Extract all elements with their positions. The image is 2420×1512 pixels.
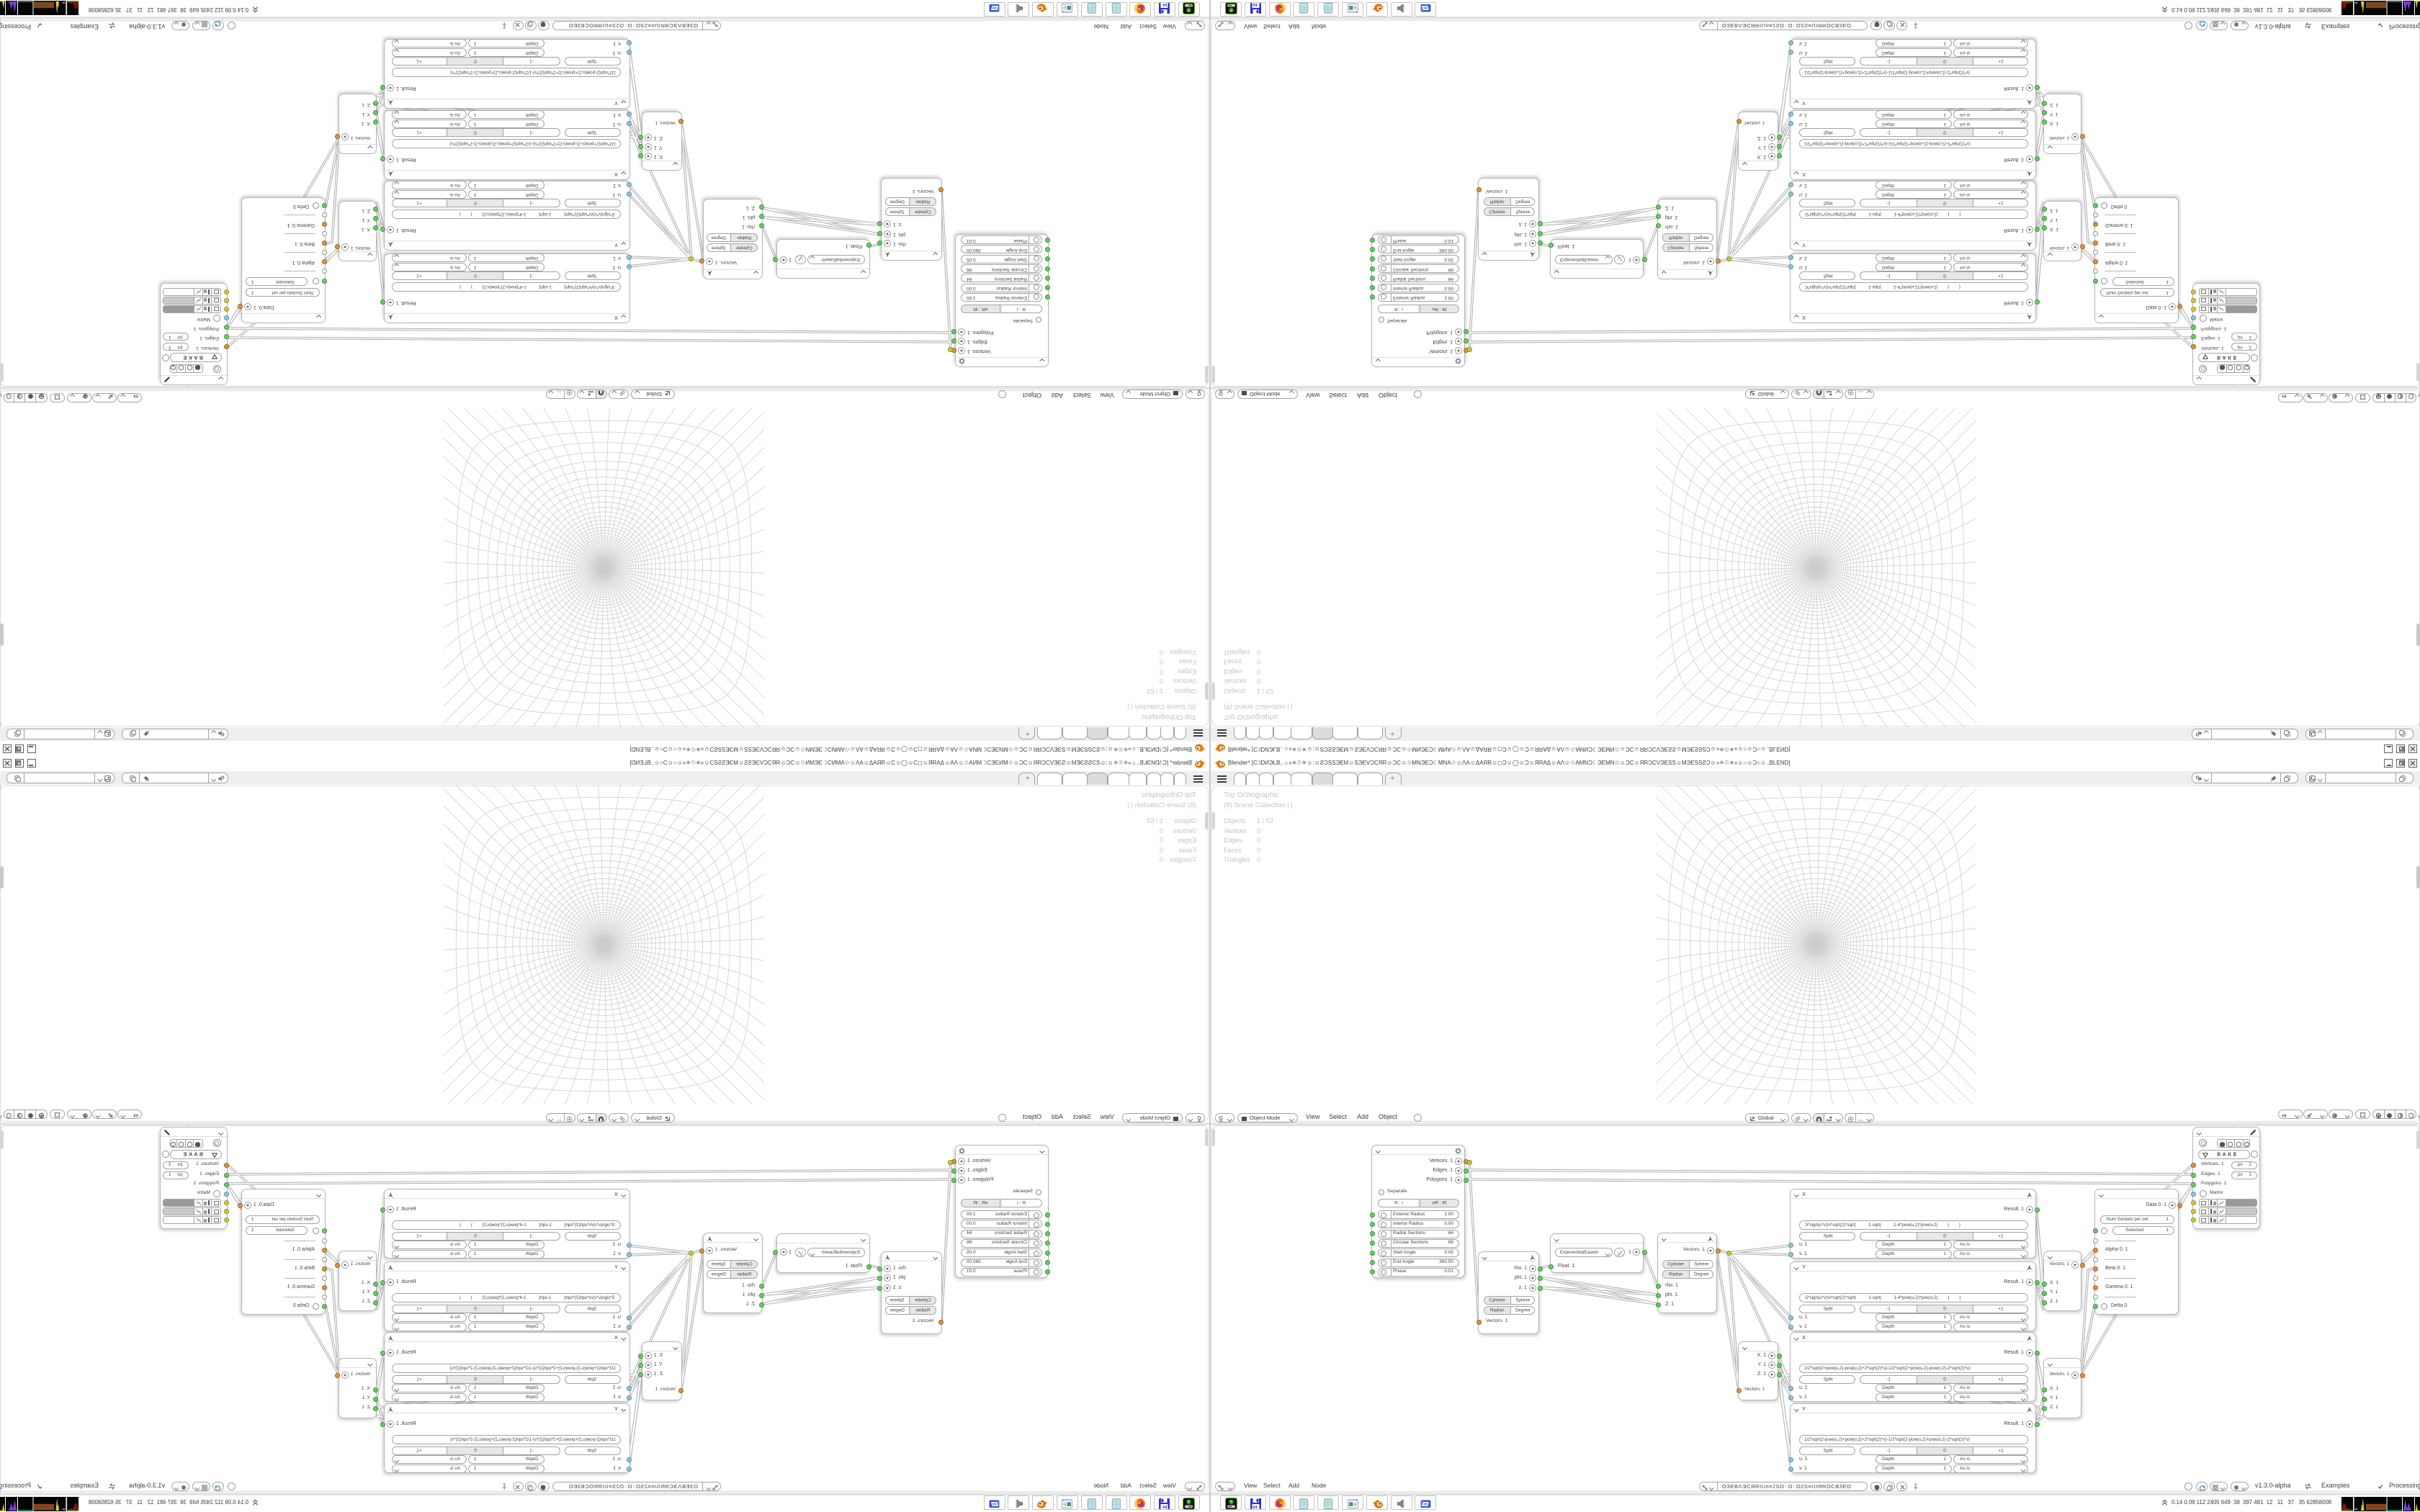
svg-text:64: 64 <box>1252 3 1258 7</box>
svg-text:64: 64 <box>1162 3 1168 7</box>
svg-text:64: 64 <box>1162 1506 1168 1510</box>
svg-text:64: 64 <box>1252 1506 1258 1510</box>
